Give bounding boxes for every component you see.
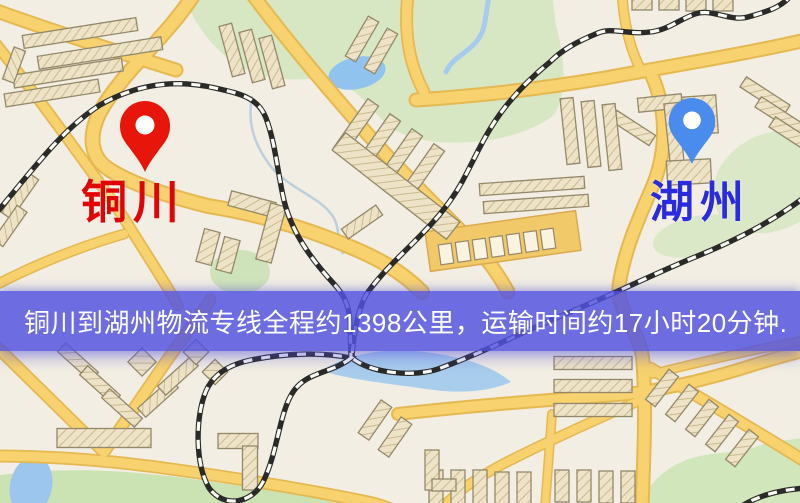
origin-city-label: 铜川 bbox=[81, 166, 185, 232]
map-canvas bbox=[0, 0, 800, 503]
route-info-banner: 铜川到湖州物流专线全程约1398公里，运输时间约17小时20分钟. bbox=[0, 291, 800, 351]
route-info-text: 铜川到湖州物流专线全程约1398公里，运输时间约17小时20分钟. bbox=[0, 303, 787, 340]
destination-city-label: 湖州 bbox=[650, 166, 750, 230]
map-image: 铜川 湖州 铜川到湖州物流专线全程约1398公里，运输时间约17小时20分钟. bbox=[0, 0, 800, 503]
